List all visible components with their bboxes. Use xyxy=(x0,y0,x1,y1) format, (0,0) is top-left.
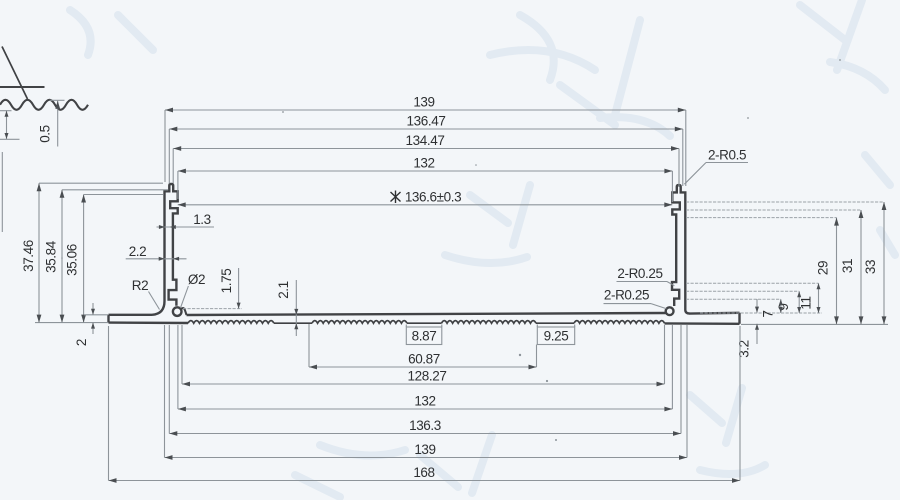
svg-text:2-R0.5: 2-R0.5 xyxy=(708,148,746,163)
svg-text:R2: R2 xyxy=(132,278,148,293)
svg-text:8.87: 8.87 xyxy=(412,329,437,344)
svg-text:134.47: 134.47 xyxy=(406,133,445,148)
svg-text:2: 2 xyxy=(74,339,89,346)
svg-text:1.3: 1.3 xyxy=(193,212,211,227)
svg-text:35.84: 35.84 xyxy=(44,240,59,273)
svg-text:Ø2: Ø2 xyxy=(188,272,205,287)
svg-text:31: 31 xyxy=(840,259,855,273)
svg-text:136.47: 136.47 xyxy=(407,114,446,129)
svg-text:136.3: 136.3 xyxy=(409,418,441,433)
svg-text:136.6±0.3: 136.6±0.3 xyxy=(405,189,461,204)
svg-text:132: 132 xyxy=(413,156,434,171)
svg-text:9.25: 9.25 xyxy=(544,329,569,344)
svg-text:0.5: 0.5 xyxy=(38,125,53,143)
svg-text:1.75: 1.75 xyxy=(219,269,234,294)
svg-text:35.06: 35.06 xyxy=(65,244,80,276)
svg-text:60.87: 60.87 xyxy=(408,352,440,367)
svg-text:2.2: 2.2 xyxy=(129,244,147,259)
svg-text:168: 168 xyxy=(413,465,434,480)
svg-text:2-R0.25: 2-R0.25 xyxy=(617,266,662,281)
svg-text:37.46: 37.46 xyxy=(21,240,36,272)
svg-text:128.27: 128.27 xyxy=(408,369,447,384)
svg-text:29: 29 xyxy=(816,261,831,275)
svg-text:7: 7 xyxy=(761,310,776,317)
svg-text:139: 139 xyxy=(413,95,434,110)
svg-text:132: 132 xyxy=(414,394,435,409)
svg-text:139: 139 xyxy=(414,442,435,457)
svg-text:2.1: 2.1 xyxy=(276,281,291,299)
svg-text:2-R0.25: 2-R0.25 xyxy=(604,288,649,303)
svg-text:33: 33 xyxy=(863,260,878,274)
svg-text:9: 9 xyxy=(776,303,791,310)
svg-text:3.2: 3.2 xyxy=(737,340,752,358)
